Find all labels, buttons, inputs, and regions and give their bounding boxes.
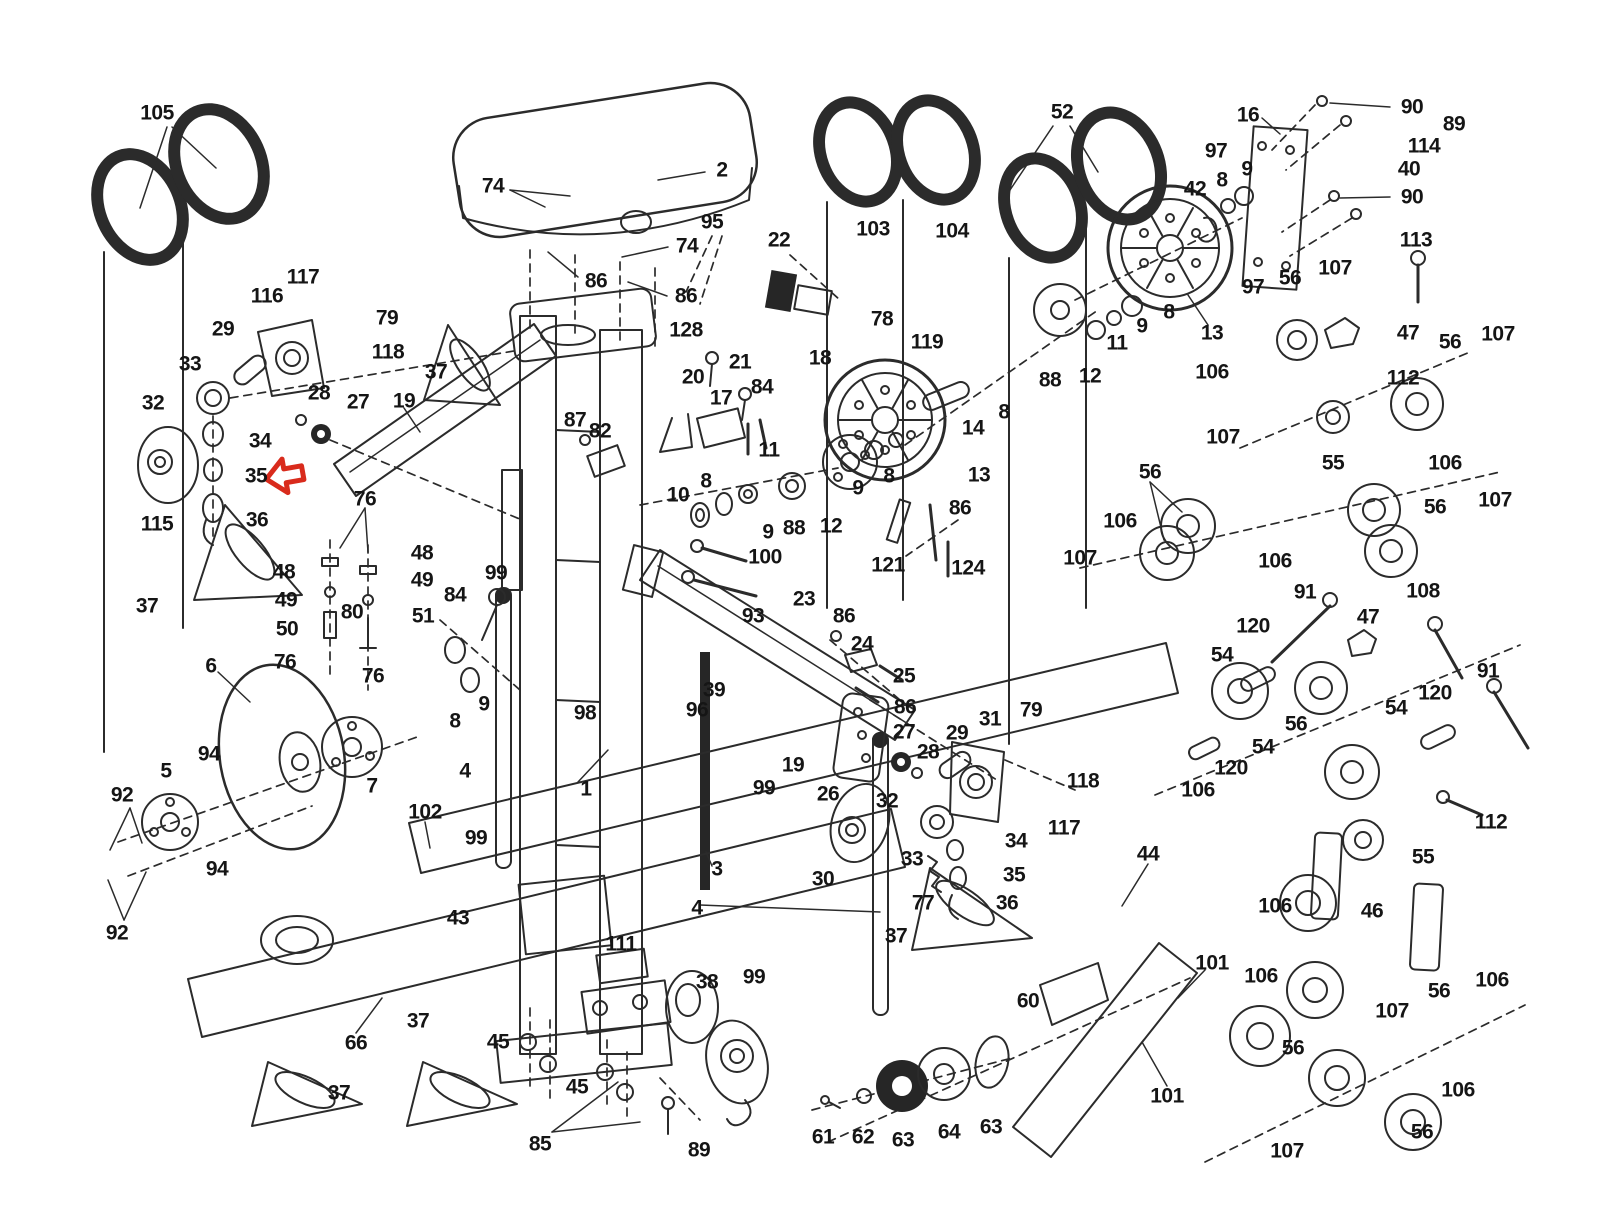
- part-callout: 37: [407, 1011, 429, 1032]
- part-callout: 28: [917, 742, 939, 763]
- part-callout: 99: [465, 828, 487, 849]
- part-callout: 121: [871, 555, 905, 576]
- part-callout: 8: [449, 711, 460, 732]
- part-callout: 103: [856, 219, 890, 240]
- part-callout: 106: [1475, 970, 1509, 991]
- part-callout: 99: [485, 563, 507, 584]
- part-callout: 91: [1294, 582, 1316, 603]
- part-callout: 19: [782, 755, 804, 776]
- part-callout: 51: [412, 606, 434, 627]
- part-callout: 117: [1048, 818, 1080, 839]
- part-callout: 94: [206, 859, 228, 880]
- diagram-canvas: 1052747486869522128211820178452103104781…: [0, 0, 1600, 1215]
- part-callout: 79: [1020, 700, 1042, 721]
- part-callout: 6: [205, 656, 216, 677]
- part-callout: 45: [487, 1032, 509, 1053]
- part-callout: 16: [1237, 105, 1259, 126]
- part-callout: 87: [564, 410, 586, 431]
- part-callout: 86: [675, 286, 697, 307]
- part-callout: 43: [447, 908, 469, 929]
- part-callout: 90: [1401, 187, 1423, 208]
- part-callout: 9: [1241, 159, 1252, 180]
- part-callout: 112: [1475, 812, 1507, 833]
- part-callout: 56: [1285, 714, 1307, 735]
- part-callout: 106: [1181, 780, 1215, 801]
- part-callout: 113: [1400, 230, 1432, 251]
- part-callout: 95: [701, 212, 723, 233]
- part-callout: 27: [893, 722, 915, 743]
- part-callout: 101: [1195, 953, 1229, 974]
- part-callout: 42: [1184, 179, 1206, 200]
- part-callout: 86: [949, 498, 971, 519]
- part-callout: 98: [574, 703, 596, 724]
- part-callout: 106: [1244, 966, 1278, 987]
- part-callout: 9: [762, 522, 773, 543]
- part-callout: 97: [1242, 277, 1264, 298]
- part-callout: 27: [347, 392, 369, 413]
- part-callout: 13: [1201, 323, 1223, 344]
- part-callout: 56: [1279, 268, 1301, 289]
- part-callout: 23: [793, 589, 815, 610]
- part-callout: 9: [852, 478, 863, 499]
- part-callout: 106: [1195, 362, 1229, 383]
- part-callout: 97: [1205, 141, 1227, 162]
- part-callout: 108: [1406, 581, 1440, 602]
- part-callout: 55: [1412, 847, 1434, 868]
- part-callout: 91: [1477, 661, 1499, 682]
- part-callout: 107: [1478, 490, 1512, 511]
- part-callout: 31: [979, 709, 1001, 730]
- part-callout: 7: [366, 776, 377, 797]
- part-callout: 4: [691, 898, 702, 919]
- part-callout: 55: [1322, 453, 1344, 474]
- part-callout: 29: [946, 723, 968, 744]
- part-callout: 96: [686, 700, 708, 721]
- part-callout: 38: [696, 972, 718, 993]
- part-callout: 52: [1051, 102, 1073, 123]
- part-callout: 76: [354, 489, 376, 510]
- part-callout: 86: [833, 606, 855, 627]
- part-callout: 8: [883, 466, 894, 487]
- part-callout: 33: [901, 849, 923, 870]
- part-callout: 120: [1418, 683, 1452, 704]
- part-callout: 90: [1401, 97, 1423, 118]
- part-callout: 84: [444, 585, 466, 606]
- part-callout: 33: [179, 354, 201, 375]
- part-callout: 56: [1411, 1122, 1433, 1143]
- part-callout: 99: [743, 967, 765, 988]
- part-callout: 8: [998, 402, 1009, 423]
- part-callout: 5: [160, 761, 171, 782]
- part-callout: 106: [1103, 511, 1137, 532]
- part-callout: 19: [393, 391, 415, 412]
- part-callout: 47: [1357, 607, 1379, 628]
- part-callout: 106: [1258, 551, 1292, 572]
- part-callout: 88: [783, 518, 805, 539]
- part-callout: 4: [459, 761, 470, 782]
- part-callout: 107: [1206, 427, 1240, 448]
- part-callout: 48: [411, 543, 433, 564]
- part-callout: 18: [809, 348, 831, 369]
- part-callout: 80: [341, 602, 363, 623]
- part-callout: 85: [529, 1134, 551, 1155]
- part-callout: 128: [669, 320, 703, 341]
- part-callout: 62: [852, 1127, 874, 1148]
- part-callout: 8: [1216, 170, 1227, 191]
- part-callout: 107: [1375, 1001, 1409, 1022]
- part-callout: 74: [482, 176, 504, 197]
- part-callout: 8: [1163, 302, 1174, 323]
- part-callout: 54: [1252, 737, 1274, 758]
- part-callout: 76: [274, 652, 296, 673]
- part-callout: 46: [1361, 901, 1383, 922]
- part-callout: 101: [1150, 1086, 1184, 1107]
- part-callout: 92: [111, 785, 133, 806]
- part-callout: 106: [1258, 896, 1292, 917]
- part-callout: 78: [871, 309, 893, 330]
- part-callout: 84: [751, 377, 773, 398]
- part-callout: 89: [688, 1140, 710, 1161]
- part-callout: 86: [894, 697, 916, 718]
- part-callout: 44: [1137, 844, 1159, 865]
- part-callout: 116: [251, 286, 283, 307]
- part-callout: 119: [911, 332, 943, 353]
- part-callout: 20: [682, 367, 704, 388]
- part-callout: 37: [885, 926, 907, 947]
- part-callout: 36: [996, 893, 1018, 914]
- part-callout: 32: [142, 393, 164, 414]
- part-callout: 88: [1039, 370, 1061, 391]
- part-callout: 63: [980, 1117, 1002, 1138]
- part-callout: 92: [106, 923, 128, 944]
- part-callout: 99: [753, 778, 775, 799]
- part-callout: 114: [1408, 136, 1440, 157]
- part-callout: 54: [1211, 645, 1233, 666]
- part-callout: 9: [1136, 316, 1147, 337]
- part-callout: 30: [812, 869, 834, 890]
- part-callout: 37: [425, 362, 447, 383]
- part-callout: 12: [1079, 366, 1101, 387]
- part-callout: 77: [912, 893, 934, 914]
- part-callout: 50: [276, 619, 298, 640]
- part-callout: 56: [1439, 332, 1461, 353]
- part-callout: 93: [742, 606, 764, 627]
- part-callout: 35: [1003, 865, 1025, 886]
- part-callout: 106: [1441, 1080, 1475, 1101]
- part-callout: 37: [136, 596, 158, 617]
- part-callout: 66: [345, 1033, 367, 1054]
- part-callout: 21: [729, 352, 751, 373]
- part-callout: 107: [1318, 258, 1352, 279]
- part-callout: 34: [249, 431, 271, 452]
- part-callout: 107: [1481, 324, 1515, 345]
- part-callout: 22: [768, 230, 790, 251]
- part-callout: 36: [246, 510, 268, 531]
- part-callout: 100: [748, 547, 782, 568]
- part-callout: 13: [968, 465, 990, 486]
- part-callout: 107: [1270, 1141, 1304, 1162]
- part-callout: 120: [1236, 616, 1270, 637]
- part-callout: 82: [589, 421, 611, 442]
- part-callout: 124: [951, 558, 985, 579]
- part-callout: 115: [141, 514, 173, 535]
- part-callout: 60: [1017, 991, 1039, 1012]
- part-callout: 107: [1063, 548, 1097, 569]
- part-callout: 1: [580, 779, 591, 800]
- part-callout: 76: [362, 666, 384, 687]
- part-callout: 56: [1428, 981, 1450, 1002]
- part-callout: 56: [1424, 497, 1446, 518]
- part-callout: 28: [308, 383, 330, 404]
- part-callout: 112: [1387, 368, 1419, 389]
- part-callout: 40: [1398, 159, 1420, 180]
- part-callout: 48: [273, 562, 295, 583]
- part-callout: 118: [372, 342, 404, 363]
- part-callout: 11: [1106, 333, 1127, 354]
- part-callout: 111: [605, 934, 636, 955]
- part-callout: 74: [676, 236, 698, 257]
- part-callout: 25: [893, 666, 915, 687]
- part-callout: 2: [716, 160, 727, 181]
- part-callout: 29: [212, 319, 234, 340]
- part-callout: 63: [892, 1130, 914, 1151]
- part-callout: 10: [667, 485, 689, 506]
- part-callout: 12: [820, 516, 842, 537]
- part-callout: 120: [1214, 758, 1248, 779]
- part-callout: 32: [876, 791, 898, 812]
- part-callout: 8: [700, 471, 711, 492]
- part-callout: 37: [328, 1083, 350, 1104]
- part-callout: 118: [1067, 771, 1099, 792]
- part-callout: 14: [962, 418, 984, 439]
- part-callout: 89: [1443, 114, 1465, 135]
- part-callout: 106: [1428, 453, 1462, 474]
- part-callout: 35: [245, 466, 267, 487]
- part-callout: 86: [585, 271, 607, 292]
- part-callout: 54: [1385, 698, 1407, 719]
- part-callout: 49: [411, 570, 433, 591]
- part-callout: 104: [935, 221, 969, 242]
- part-callout: 94: [198, 744, 220, 765]
- part-callout: 39: [703, 680, 725, 701]
- part-callout: 64: [938, 1122, 960, 1143]
- part-callout: 9: [478, 694, 489, 715]
- part-callout: 49: [275, 590, 297, 611]
- part-callout: 3: [711, 859, 722, 880]
- part-callout: 26: [817, 784, 839, 805]
- part-callout: 117: [287, 267, 319, 288]
- part-callout: 79: [376, 308, 398, 329]
- part-callout: 105: [140, 103, 174, 124]
- part-callout: 47: [1397, 323, 1419, 344]
- part-callout: 56: [1139, 462, 1161, 483]
- part-callout: 24: [851, 634, 873, 655]
- part-callout: 11: [758, 440, 779, 461]
- part-callout: 56: [1282, 1038, 1304, 1059]
- part-callout: 61: [812, 1127, 834, 1148]
- part-callout: 45: [566, 1077, 588, 1098]
- part-callout: 17: [710, 388, 732, 409]
- part-callout: 34: [1005, 831, 1027, 852]
- part-callout: 102: [408, 802, 442, 823]
